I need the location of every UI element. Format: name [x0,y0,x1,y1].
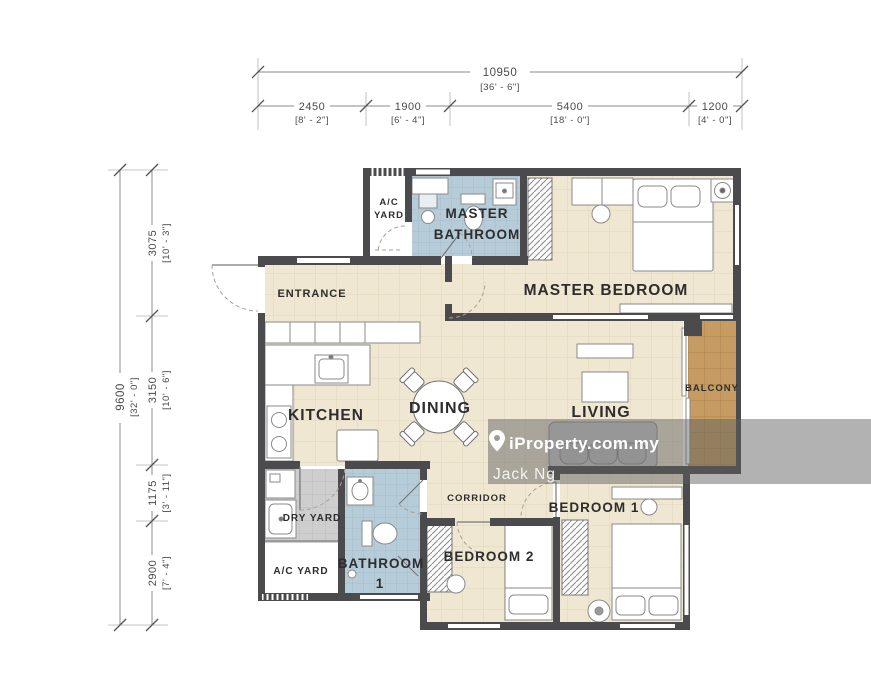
label-entrance: ENTRANCE [277,288,346,300]
label-master-bathroom: MASTER [446,206,509,221]
dim-left-seg-ft: [10' - 6"] [161,370,172,410]
dim-top-seg-ft: [18' - 0"] [550,115,590,126]
dimension-top: 10950 [36' - 6"] 2450 [8' - 2"] 1900 [6'… [252,58,748,130]
dim-left-seg-mm: 2900 [147,560,159,586]
window [685,525,689,615]
window [735,205,739,265]
label-living: LIVING [571,404,630,421]
window-ledge [620,304,732,313]
dim-top-overall-ft: [36' - 6"] [480,82,520,93]
yard-divider [265,540,338,543]
dim-top-seg-mm: 2450 [299,101,325,113]
dim-left-seg-mm: 3150 [147,377,159,403]
dim-top-overall-mm: 10950 [483,67,517,79]
window [416,170,450,175]
stool-icon [447,575,465,593]
wall [420,512,427,630]
window [448,624,500,628]
window [297,258,350,263]
shoe-cabinet-icon [265,322,420,343]
master-bed-icon [633,179,713,271]
label-dry-yard: DRY YARD [283,513,342,524]
window [620,624,675,628]
label-bathroom1: 1 [376,576,385,591]
dim-left-seg-mm: 3075 [147,230,159,256]
dimension-left: 9600 [32' - 0"] 3075 [10' - 3"] 3150 [10… [108,164,172,631]
wall [258,313,265,601]
label-bedroom1: BEDROOM 1 [549,500,640,515]
watermark: iProperty.com.my Jack Ng [488,419,871,484]
door-swing-arc [212,265,258,311]
tv-console-icon [577,344,633,358]
floorplan-page: ENTRANCE A/C YARD MASTER BATHROOM MASTER… [0,0,871,697]
louver-vent-icon [366,168,404,176]
wall [363,168,370,260]
wall [420,469,427,480]
floor-drain-icon [348,570,356,578]
label-corridor: CORRIDOR [447,493,507,504]
label-kitchen: KITCHEN [288,407,364,424]
dim-left-overall-ft: [32' - 0"] [129,377,140,417]
dim-left-overall-mm: 9600 [115,383,127,411]
wall [345,461,430,469]
dim-left-seg-ft: [3' - 11"] [161,473,172,512]
floorplan-canvas: ENTRANCE A/C YARD MASTER BATHROOM MASTER… [0,0,871,697]
dim-top-seg-ft: [6' - 4"] [391,115,425,126]
coffee-table-icon [582,372,628,402]
dry-yard-fixtures [265,470,296,538]
dim-left-seg-ft: [7' - 4"] [161,556,172,590]
label-ac-yard-top: YARD [374,210,404,221]
dim-top-seg-ft: [8' - 2"] [295,115,329,126]
label-ac-yard-top: A/C [379,197,398,208]
wall [258,461,300,469]
dim-top-seg-mm: 1900 [395,101,421,113]
watermark-brand: iProperty.com.my [509,434,659,453]
label-bathroom1: BATHROOM [338,556,425,571]
wall [472,256,528,265]
dim-top-seg-mm: 5400 [557,101,583,113]
label-dining: DINING [409,400,471,417]
vanity-icon [412,178,448,194]
fan-icon [588,600,610,622]
aircon-unit-icon [711,179,734,202]
fridge-icon [337,430,378,461]
wall [445,256,452,282]
double-bed-icon [612,524,681,620]
toilet-icon [461,194,485,204]
wardrobe-icon [528,178,552,260]
shower-icon [419,194,437,208]
stool-icon [592,205,610,223]
single-bed-icon [505,524,552,620]
wall [490,518,560,526]
label-bedroom2: BEDROOM 2 [444,549,535,564]
column [684,320,702,336]
dim-left-seg-ft: [10' - 3"] [161,223,172,263]
dim-top-seg-mm: 1200 [702,101,728,113]
louver-vent-icon [262,594,308,600]
label-ac-yard-bottom: A/C YARD [273,566,328,577]
label-master-bathroom: BATHROOM [434,227,521,242]
wardrobe-icon [562,520,588,595]
wall [338,469,345,601]
wall [405,176,412,222]
toilet-icon [362,521,372,546]
wall [520,176,527,256]
dim-top-seg-ft: [4' - 0"] [698,115,732,126]
window [700,315,733,319]
label-master-bedroom: MASTER BEDROOM [524,282,689,299]
stool-icon [641,499,657,515]
window [553,315,648,319]
dim-left-seg-mm: 1175 [147,480,159,506]
window [360,595,418,599]
watermark-agent: Jack Ng [493,466,556,483]
label-balcony: BALCONY [685,383,739,394]
wall [553,517,560,630]
wall [420,518,455,526]
wall [258,256,265,267]
